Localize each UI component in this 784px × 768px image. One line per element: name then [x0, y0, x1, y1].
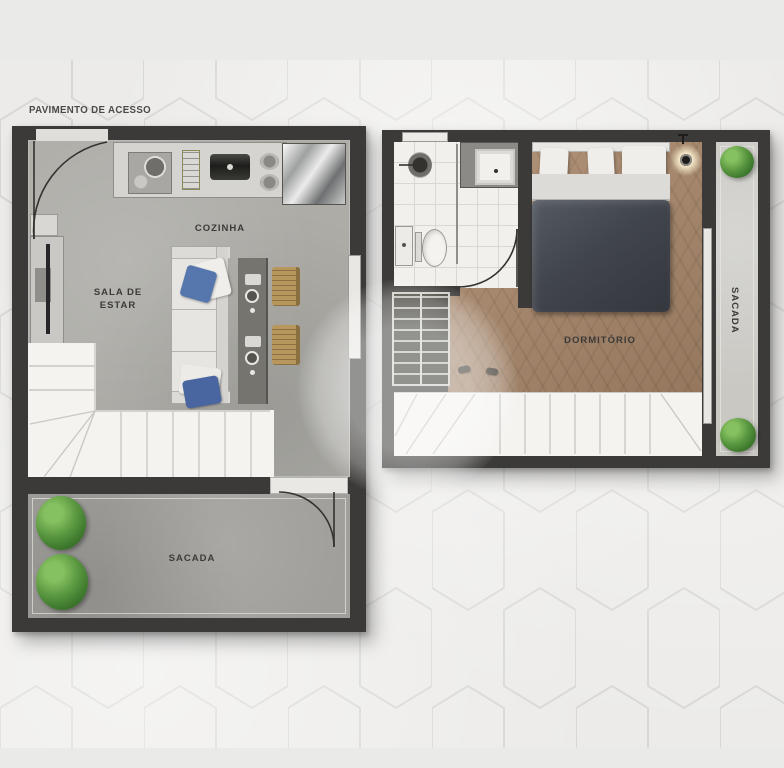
- toilet-bowl: [422, 229, 447, 267]
- staircase-upper-flight: [28, 343, 96, 410]
- cup: [250, 308, 255, 313]
- bathroom-cabinet: [395, 226, 413, 266]
- washbasin: [475, 149, 515, 185]
- shoes: [486, 367, 499, 376]
- living-room-label: SALA DE ESTAR: [70, 286, 166, 312]
- bed-sheet-fold: [532, 174, 670, 201]
- toilet-tank: [415, 232, 422, 262]
- dining-counter: [238, 258, 268, 404]
- stove-top: [210, 154, 250, 180]
- place-mat: [245, 274, 261, 285]
- upper-balcony-label: SACADA: [726, 270, 742, 350]
- entrance-door-opening: [36, 129, 108, 141]
- dining-chair: [272, 325, 300, 365]
- floorplan-upper-level: DORMITÓRIO SACADA: [382, 130, 770, 468]
- bedside-lamp-glow: [670, 144, 702, 176]
- wardrobe-divider: [420, 294, 422, 384]
- living-room-window: [348, 255, 361, 359]
- balcony-plant: [720, 418, 756, 452]
- sofa-cushion-seam: [172, 309, 217, 310]
- kitchen-rack: [182, 150, 200, 190]
- wardrobe-shelving: [392, 292, 450, 386]
- bathroom-bedroom-wall: [518, 142, 532, 308]
- lamp-stem: [682, 134, 684, 144]
- floorplan-canvas: PAVIMENTO DE ACESSO: [0, 0, 784, 768]
- bed-duvet: [532, 200, 670, 312]
- entry-bench: [30, 214, 58, 236]
- balcony-plant: [36, 496, 86, 550]
- place-mat: [245, 336, 261, 347]
- plate: [245, 289, 259, 303]
- dining-chair: [272, 267, 300, 306]
- balcony-door-threshold: [270, 477, 348, 494]
- floorplan-access-level: COZINHA SALA DE ESTAR SACADA: [12, 126, 366, 632]
- balcony-sliding-door: [703, 228, 712, 424]
- page-title: PAVIMENTO DE ACESSO: [29, 104, 151, 116]
- balcony-plant: [720, 146, 754, 178]
- upper-staircase: [394, 392, 702, 456]
- tv-screen: [46, 244, 50, 334]
- sofa-cushion-seam: [172, 351, 217, 352]
- double-bed: [532, 142, 670, 312]
- refrigerator: [282, 143, 346, 205]
- burner: [260, 153, 279, 170]
- bedroom-label: DORMITÓRIO: [544, 334, 656, 347]
- kitchen-sink: [128, 152, 172, 194]
- living-room-label-line1: SALA DE: [70, 286, 166, 299]
- bedside-lamp: [680, 154, 692, 166]
- staircase-lower-flight: [28, 410, 274, 477]
- burner: [260, 174, 279, 191]
- shower-head: [408, 152, 432, 178]
- balcony-plant: [36, 554, 88, 610]
- cup: [250, 370, 255, 375]
- living-room-label-line2: ESTAR: [70, 299, 166, 312]
- plate: [245, 351, 259, 365]
- balcony-label: SACADA: [142, 552, 242, 565]
- bathroom-window: [402, 132, 448, 142]
- kitchen-label: COZINHA: [172, 222, 268, 235]
